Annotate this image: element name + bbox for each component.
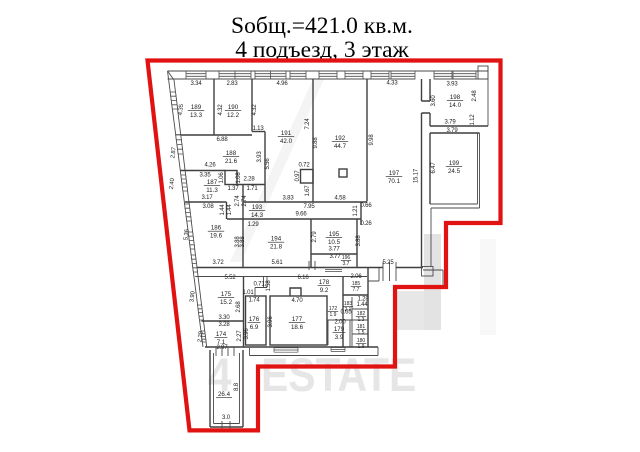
svg-text:14.0: 14.0 bbox=[449, 102, 462, 109]
svg-text:1.44: 1.44 bbox=[356, 302, 368, 308]
svg-text:3.72: 3.72 bbox=[212, 260, 224, 266]
svg-text:26.4: 26.4 bbox=[218, 391, 231, 398]
svg-text:9.98: 9.98 bbox=[369, 134, 375, 146]
svg-text:1.3: 1.3 bbox=[358, 317, 365, 323]
svg-text:3.9: 3.9 bbox=[335, 334, 344, 341]
svg-text:6.16: 6.16 bbox=[297, 275, 309, 281]
svg-text:1.29: 1.29 bbox=[247, 222, 259, 228]
svg-text:2.83: 2.83 bbox=[226, 81, 238, 87]
svg-text:186: 186 bbox=[211, 225, 222, 232]
svg-text:0.71: 0.71 bbox=[253, 282, 265, 288]
svg-text:3.17: 3.17 bbox=[201, 195, 213, 201]
svg-text:1.74: 1.74 bbox=[248, 298, 260, 304]
svg-text:7.95: 7.95 bbox=[303, 204, 315, 210]
svg-text:3.60: 3.60 bbox=[431, 95, 437, 107]
svg-text:9.2: 9.2 bbox=[320, 287, 329, 294]
svg-text:3.08: 3.08 bbox=[202, 204, 214, 210]
svg-text:4.26: 4.26 bbox=[204, 163, 216, 169]
svg-text:21.6: 21.6 bbox=[225, 158, 238, 165]
svg-text:2.74: 2.74 bbox=[242, 195, 248, 207]
svg-text:11.3: 11.3 bbox=[206, 187, 218, 194]
svg-text:1.44: 1.44 bbox=[227, 204, 233, 216]
svg-text:19.6: 19.6 bbox=[210, 233, 223, 240]
svg-text:198: 198 bbox=[450, 94, 461, 101]
svg-text:3.0: 3.0 bbox=[222, 415, 231, 421]
svg-text:2.00: 2.00 bbox=[334, 320, 346, 326]
svg-text:199: 199 bbox=[449, 160, 460, 167]
svg-text:4.96: 4.96 bbox=[276, 81, 288, 87]
svg-text:10.5: 10.5 bbox=[328, 239, 341, 246]
svg-text:4.33: 4.33 bbox=[386, 81, 398, 87]
svg-text:2.97: 2.97 bbox=[216, 345, 228, 351]
svg-text:9.66: 9.66 bbox=[295, 212, 307, 218]
svg-text:188: 188 bbox=[226, 150, 237, 157]
svg-text:5.61: 5.61 bbox=[271, 260, 283, 266]
svg-text:24.5: 24.5 bbox=[448, 168, 461, 175]
svg-text:3.7: 3.7 bbox=[343, 261, 350, 267]
svg-text:18.6: 18.6 bbox=[291, 324, 304, 331]
svg-text:2.28: 2.28 bbox=[243, 177, 255, 183]
svg-text:187: 187 bbox=[207, 179, 218, 186]
svg-text:6.88: 6.88 bbox=[216, 137, 228, 143]
svg-text:189: 189 bbox=[191, 104, 202, 111]
svg-text:6.47: 6.47 bbox=[431, 162, 437, 174]
svg-text:1.08: 1.08 bbox=[236, 172, 242, 184]
svg-text:191: 191 bbox=[281, 130, 292, 137]
svg-text:195: 195 bbox=[329, 231, 340, 238]
svg-text:3.93: 3.93 bbox=[257, 151, 263, 163]
svg-text:44.7: 44.7 bbox=[334, 143, 347, 150]
svg-text:193: 193 bbox=[252, 204, 263, 211]
svg-text:21.8: 21.8 bbox=[270, 244, 283, 251]
svg-text:7.7: 7.7 bbox=[353, 287, 360, 293]
svg-text:0.26: 0.26 bbox=[360, 221, 372, 227]
svg-text:176: 176 bbox=[249, 316, 260, 323]
svg-text:4.32: 4.32 bbox=[218, 104, 224, 116]
svg-text:1.5: 1.5 bbox=[358, 330, 365, 336]
svg-text:190: 190 bbox=[228, 104, 239, 111]
svg-text:8.8: 8.8 bbox=[234, 382, 240, 391]
svg-text:14.3: 14.3 bbox=[251, 212, 264, 219]
svg-text:Sобщ.=421.0 кв.м.: Sобщ.=421.0 кв.м. bbox=[231, 13, 413, 39]
svg-text:4.32: 4.32 bbox=[252, 104, 258, 116]
svg-text:3.35: 3.35 bbox=[199, 173, 211, 179]
svg-text:2.27: 2.27 bbox=[237, 330, 243, 342]
svg-text:194: 194 bbox=[271, 236, 282, 243]
svg-text:2.74: 2.74 bbox=[235, 195, 241, 207]
svg-text:174: 174 bbox=[216, 331, 227, 338]
svg-text:178: 178 bbox=[319, 279, 330, 286]
svg-text:1.37: 1.37 bbox=[227, 186, 239, 192]
svg-text:1.06: 1.06 bbox=[219, 172, 225, 184]
svg-text:1.58: 1.58 bbox=[266, 280, 272, 292]
svg-text:177: 177 bbox=[292, 316, 303, 323]
svg-text:1.71: 1.71 bbox=[246, 186, 258, 192]
svg-text:13.3: 13.3 bbox=[190, 112, 203, 119]
svg-text:2.68: 2.68 bbox=[236, 301, 242, 313]
svg-text:5.25: 5.25 bbox=[382, 260, 394, 266]
svg-text:15.2: 15.2 bbox=[220, 299, 233, 306]
svg-text:3.77: 3.77 bbox=[328, 247, 340, 253]
svg-text:179: 179 bbox=[334, 326, 345, 333]
svg-text:3.77: 3.77 bbox=[329, 254, 341, 260]
svg-text:1.01: 1.01 bbox=[242, 290, 254, 296]
svg-text:2.79: 2.79 bbox=[312, 231, 318, 243]
svg-text:192: 192 bbox=[335, 135, 346, 142]
svg-text:175: 175 bbox=[221, 291, 232, 298]
svg-text:3.83: 3.83 bbox=[282, 196, 294, 202]
svg-text:1.67: 1.67 bbox=[305, 185, 311, 197]
svg-text:1.9: 1.9 bbox=[330, 312, 337, 318]
svg-text:1.13: 1.13 bbox=[252, 126, 264, 132]
svg-text:70.1: 70.1 bbox=[388, 178, 401, 185]
svg-text:42.0: 42.0 bbox=[280, 138, 293, 145]
svg-text:0.97: 0.97 bbox=[295, 170, 301, 182]
svg-text:6.9: 6.9 bbox=[250, 324, 259, 331]
svg-text:3.96: 3.96 bbox=[268, 316, 274, 328]
svg-text:3.79: 3.79 bbox=[444, 120, 456, 126]
svg-text:3.34: 3.34 bbox=[190, 81, 202, 87]
svg-text:4.58: 4.58 bbox=[334, 196, 346, 202]
svg-text:0.66: 0.66 bbox=[360, 203, 372, 209]
svg-text:3.30: 3.30 bbox=[218, 315, 230, 321]
svg-text:15.17: 15.17 bbox=[414, 168, 420, 183]
svg-text:1.12: 1.12 bbox=[470, 114, 476, 126]
svg-text:4.70: 4.70 bbox=[291, 298, 303, 304]
svg-text:7.24: 7.24 bbox=[305, 118, 311, 130]
svg-text:9.88: 9.88 bbox=[313, 137, 319, 149]
svg-text:3.96: 3.96 bbox=[244, 328, 250, 340]
svg-text:197: 197 bbox=[389, 170, 400, 177]
svg-text:5.56: 5.56 bbox=[265, 158, 271, 170]
svg-text:3.88: 3.88 bbox=[356, 235, 362, 247]
svg-text:1.44: 1.44 bbox=[220, 204, 226, 216]
svg-text:1.21: 1.21 bbox=[353, 205, 359, 217]
svg-text:0.65: 0.65 bbox=[340, 310, 352, 316]
svg-text:3.88: 3.88 bbox=[240, 236, 246, 248]
svg-text:12.2: 12.2 bbox=[227, 112, 240, 119]
svg-text:3.28: 3.28 bbox=[218, 322, 230, 328]
svg-text:3.79: 3.79 bbox=[446, 128, 458, 134]
svg-text:5.52: 5.52 bbox=[224, 275, 236, 281]
svg-text:0.72: 0.72 bbox=[298, 163, 310, 169]
svg-text:2.06: 2.06 bbox=[350, 274, 362, 280]
svg-text:2.48: 2.48 bbox=[472, 90, 478, 102]
svg-text:3.93: 3.93 bbox=[446, 82, 458, 88]
svg-text:1.9: 1.9 bbox=[358, 344, 365, 350]
